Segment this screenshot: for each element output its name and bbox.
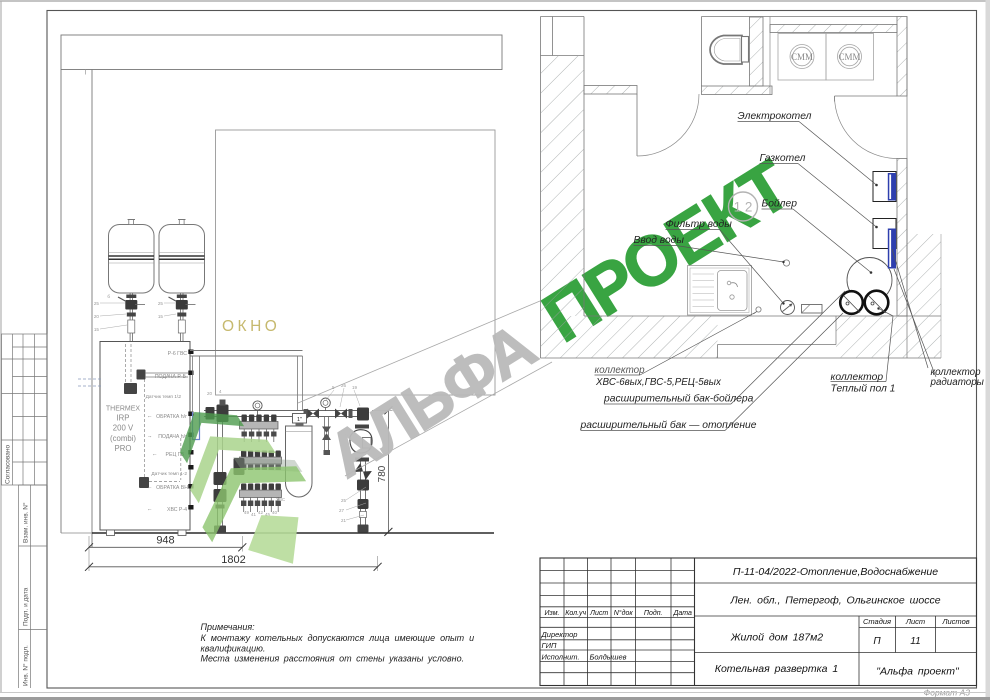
svg-text:25: 25 [341, 498, 347, 503]
svg-text:Изм.: Изм. [545, 610, 560, 617]
svg-text:11: 11 [910, 636, 920, 647]
svg-text:25: 25 [158, 301, 164, 306]
svg-text:ГИП: ГИП [542, 641, 557, 650]
svg-text:20: 20 [94, 314, 100, 319]
svg-text:ХВС: ХВС [276, 497, 286, 502]
svg-text:Ввод воды: Ввод воды [634, 235, 685, 246]
svg-text:49: 49 [244, 510, 250, 515]
svg-text:N°док: N°док [614, 609, 634, 617]
svg-text:Инв. N° подл.: Инв. N° подл. [22, 645, 30, 686]
svg-text:1802: 1802 [221, 554, 245, 566]
svg-text:Кол.уч: Кол.уч [565, 610, 586, 617]
svg-text:15: 15 [94, 327, 100, 332]
svg-text:←: ← [147, 414, 153, 420]
svg-text:→: → [147, 434, 153, 440]
svg-text:←: ← [152, 452, 158, 458]
svg-text:1 2: 1 2 [734, 200, 753, 215]
svg-text:Котельная развертка 1: Котельная развертка 1 [715, 663, 838, 675]
svg-text:Теплый пол 1: Теплый пол 1 [831, 384, 896, 395]
svg-text:Электрокотел: Электрокотел [738, 111, 812, 122]
svg-text:200 V: 200 V [113, 424, 134, 433]
svg-text:ОКНО: ОКНО [222, 318, 280, 335]
svg-text:Подп. и дата: Подп. и дата [23, 587, 30, 626]
svg-text:Директор: Директор [541, 630, 578, 639]
svg-text:Лист: Лист [589, 610, 608, 617]
svg-text:27: 27 [339, 508, 345, 513]
svg-text:расширительный бак — отоплени: расширительный бак — отопление [580, 419, 757, 431]
svg-text:Р-6 ГВС: Р-6 ГВС [168, 351, 188, 357]
svg-text:19: 19 [352, 385, 358, 390]
svg-text:К монтажу котельных допускаютс: К монтажу котельных допускаются лица име… [201, 633, 475, 643]
svg-text:ОБРАТКА h/г: ОБРАТКА h/г [156, 414, 187, 420]
svg-text:ХВС-6вых,ГВС-5,РЕЦ-5вых: ХВС-6вых,ГВС-5,РЕЦ-5вых [595, 377, 722, 388]
svg-text:Листов: Листов [941, 617, 969, 626]
svg-text:41: 41 [251, 512, 257, 517]
svg-text:15: 15 [158, 314, 164, 319]
svg-text:П-11-04/2022-Отопление,Водосна: П-11-04/2022-Отопление,Водоснабжение [733, 566, 938, 578]
svg-text:ОБРАТКА ВН: ОБРАТКА ВН [156, 485, 188, 491]
svg-text:THERMEX: THERMEX [106, 406, 141, 413]
svg-text:Газкотел: Газкотел [760, 153, 806, 164]
svg-text:СММ: СММ [838, 52, 860, 62]
svg-text:ХВС Р-4: ХВС Р-4 [167, 507, 187, 513]
svg-text:948: 948 [156, 535, 174, 547]
svg-text:расширительный бак-бойлера: расширительный бак-бойлера [603, 393, 754, 405]
svg-text:ПОДАЧА Р-Б: ПОДАЧА Р-Б [155, 374, 187, 380]
svg-text:Лист: Лист [905, 617, 925, 626]
svg-text:Бойлер: Бойлер [762, 199, 798, 210]
svg-text:←: ← [147, 485, 153, 491]
svg-text:Исполнит.: Исполнит. [542, 652, 580, 661]
svg-text:Жилой дом 187м2: Жилой дом 187м2 [730, 632, 823, 644]
svg-text:21: 21 [341, 518, 347, 523]
svg-text:Взам. инв. N°: Взам. инв. N° [22, 502, 30, 543]
svg-text:квалификацию.: квалификацию. [201, 644, 266, 654]
svg-text:б: б [107, 294, 110, 299]
svg-text:СММ: СММ [791, 52, 813, 62]
svg-text:ПОДАЧА h/г: ПОДАЧА h/г [158, 434, 187, 440]
svg-text:←: ← [147, 507, 153, 513]
svg-text:Согласовано: Согласовано [5, 445, 12, 484]
svg-text:П: П [873, 636, 881, 647]
svg-text:(combi): (combi) [110, 434, 136, 443]
svg-text:Дата: Дата [672, 610, 692, 617]
svg-text:радиаторы: радиаторы [930, 377, 985, 388]
svg-text:"Альфа проект": "Альфа проект" [876, 666, 960, 678]
svg-text:PRO: PRO [115, 444, 132, 453]
svg-text:Примечания:: Примечания: [201, 622, 256, 632]
svg-text:25: 25 [94, 301, 100, 306]
svg-text:Датчик темп 1\2: Датчик темп 1\2 [146, 394, 182, 400]
svg-text:Фильтр воды: Фильтр воды [666, 219, 733, 230]
svg-text:Лен. обл., Петергоф, Ольгинско: Лен. обл., Петергоф, Ольгинское шоссе [729, 595, 940, 607]
svg-text:20: 20 [207, 391, 213, 396]
svg-text:Места изменения расстояния от: Места изменения расстояния от стены указ… [201, 654, 465, 664]
svg-text:коллектор: коллектор [831, 372, 884, 383]
svg-text:40: 40 [272, 510, 278, 515]
svg-text:Болдышев: Болдышев [590, 652, 627, 661]
svg-text:Подп.: Подп. [644, 609, 663, 617]
svg-text:Датчик темп 1-2: Датчик темп 1-2 [151, 471, 187, 477]
svg-text:IRP: IRP [117, 414, 130, 423]
svg-text:Стадия: Стадия [863, 617, 891, 626]
svg-text:42: 42 [258, 510, 264, 515]
svg-text:1": 1" [297, 417, 302, 423]
svg-text:коллектор: коллектор [595, 365, 646, 376]
